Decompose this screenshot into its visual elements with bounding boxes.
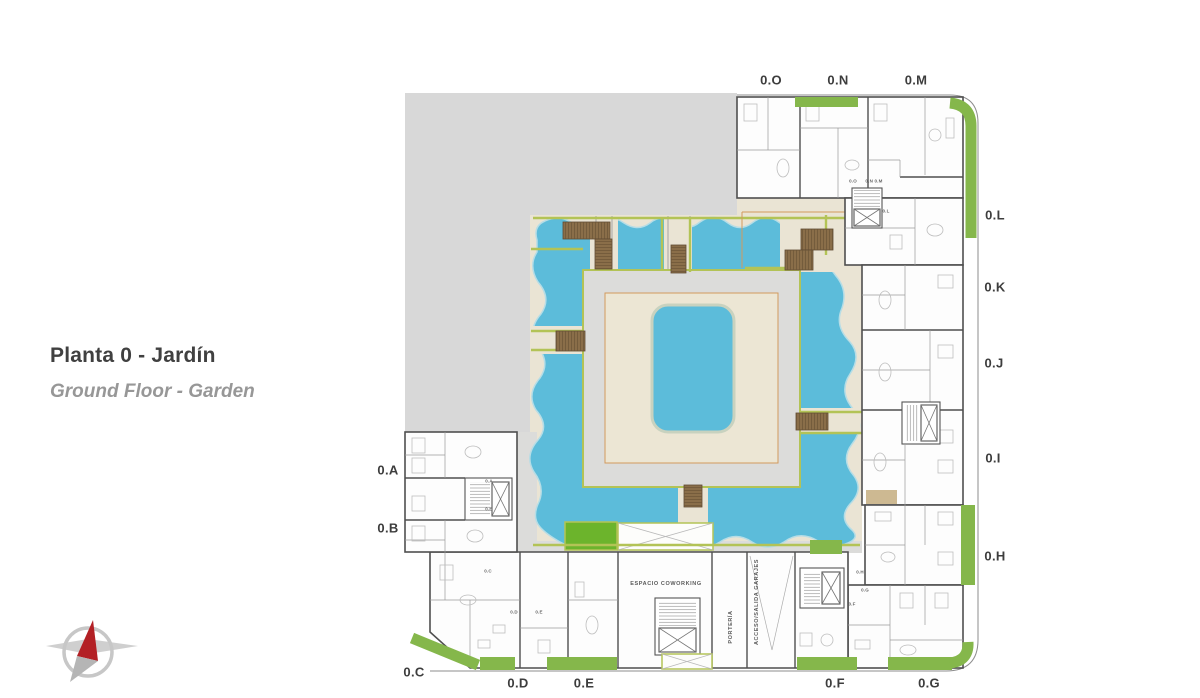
core-left (465, 478, 512, 520)
wing-0G (848, 585, 963, 668)
unit-label-0N: 0.N (827, 73, 848, 88)
unit-label-0F: 0.F (825, 676, 845, 691)
door-tag-0G: 0.G (861, 588, 869, 593)
core-0F (800, 568, 844, 608)
door-tag-0H: 0.H (856, 570, 864, 575)
door-tag-0O: 0.O (849, 179, 857, 184)
wing-right (862, 265, 963, 505)
page-title: Planta 0 - Jardín (50, 344, 216, 368)
door-tag-0B: 0.B (485, 507, 493, 512)
unit-label-0K: 0.K (984, 280, 1005, 295)
wing-bottom (430, 552, 848, 668)
unit-label-0H: 0.H (984, 549, 1005, 564)
north-compass-icon (46, 620, 138, 682)
wood-terrace-0H (866, 490, 897, 504)
unit-label-0E: 0.E (574, 676, 594, 691)
door-tag-0F: 0.F (848, 602, 855, 607)
door-tag-0D: 0.D (510, 610, 518, 615)
unit-label-0B: 0.B (377, 521, 398, 536)
bridge-left (556, 331, 585, 351)
page-subtitle: Ground Floor - Garden (50, 381, 255, 403)
core-mid-right (902, 402, 940, 444)
door-tag-0A: 0.A (485, 479, 493, 484)
room-label-porteria: PORTERÍA (728, 610, 734, 643)
unit-label-0I: 0.I (985, 451, 1000, 466)
bridge-bottom (684, 485, 702, 507)
bridge-top-center (671, 245, 686, 273)
bottom-vent-box (662, 654, 712, 669)
swimming-pool (652, 305, 734, 432)
unit-label-0G: 0.G (918, 676, 940, 691)
core-top-right (852, 188, 882, 228)
door-tag-0E: 0.E (535, 610, 542, 615)
unit-label-0L: 0.L (985, 208, 1005, 223)
unit-label-0J: 0.J (985, 356, 1004, 371)
floorplan-page: Planta 0 - Jardín Ground Floor - Garden … (0, 0, 1200, 698)
door-tag-0L: 0.L (882, 209, 889, 214)
door-tag-0N-0M: 0.N 0.M (865, 179, 882, 184)
bridge-right (796, 413, 828, 430)
room-label-garage: ACCESO/SALIDA GARAJES (754, 559, 760, 645)
room-label-coworking: ESPACIO COWORKING (630, 581, 702, 587)
unit-label-0A: 0.A (377, 463, 398, 478)
unit-label-0O: 0.O (760, 73, 782, 88)
unit-label-0D: 0.D (507, 676, 528, 691)
unit-label-0C: 0.C (403, 665, 424, 680)
door-tag-0C: 0.C (484, 569, 492, 574)
pool-deck (583, 270, 800, 487)
core-coworking (655, 598, 700, 655)
unit-label-0M: 0.M (905, 73, 928, 88)
